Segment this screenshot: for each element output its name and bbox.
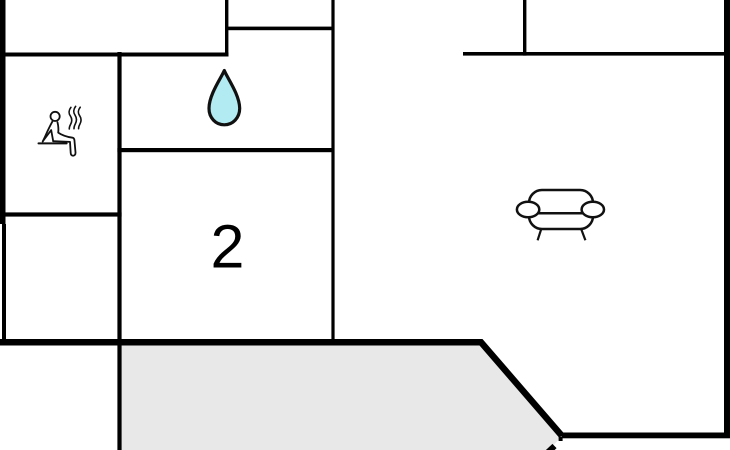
svg-text:2: 2	[211, 213, 245, 281]
